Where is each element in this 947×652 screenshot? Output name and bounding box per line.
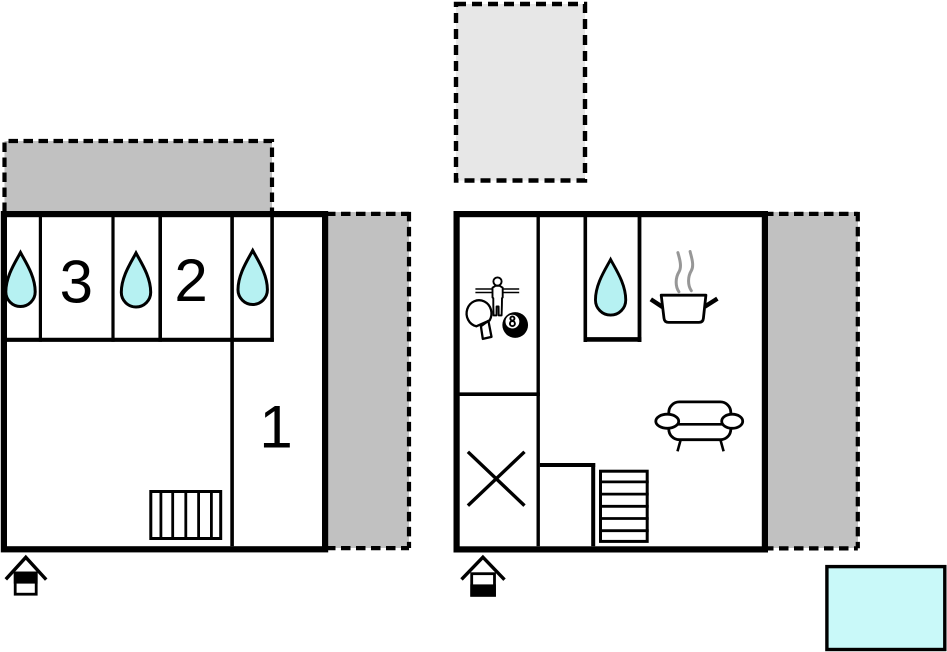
svg-text:3: 3: [60, 248, 93, 315]
svg-text:2: 2: [174, 247, 207, 314]
svg-text:1: 1: [259, 394, 292, 461]
